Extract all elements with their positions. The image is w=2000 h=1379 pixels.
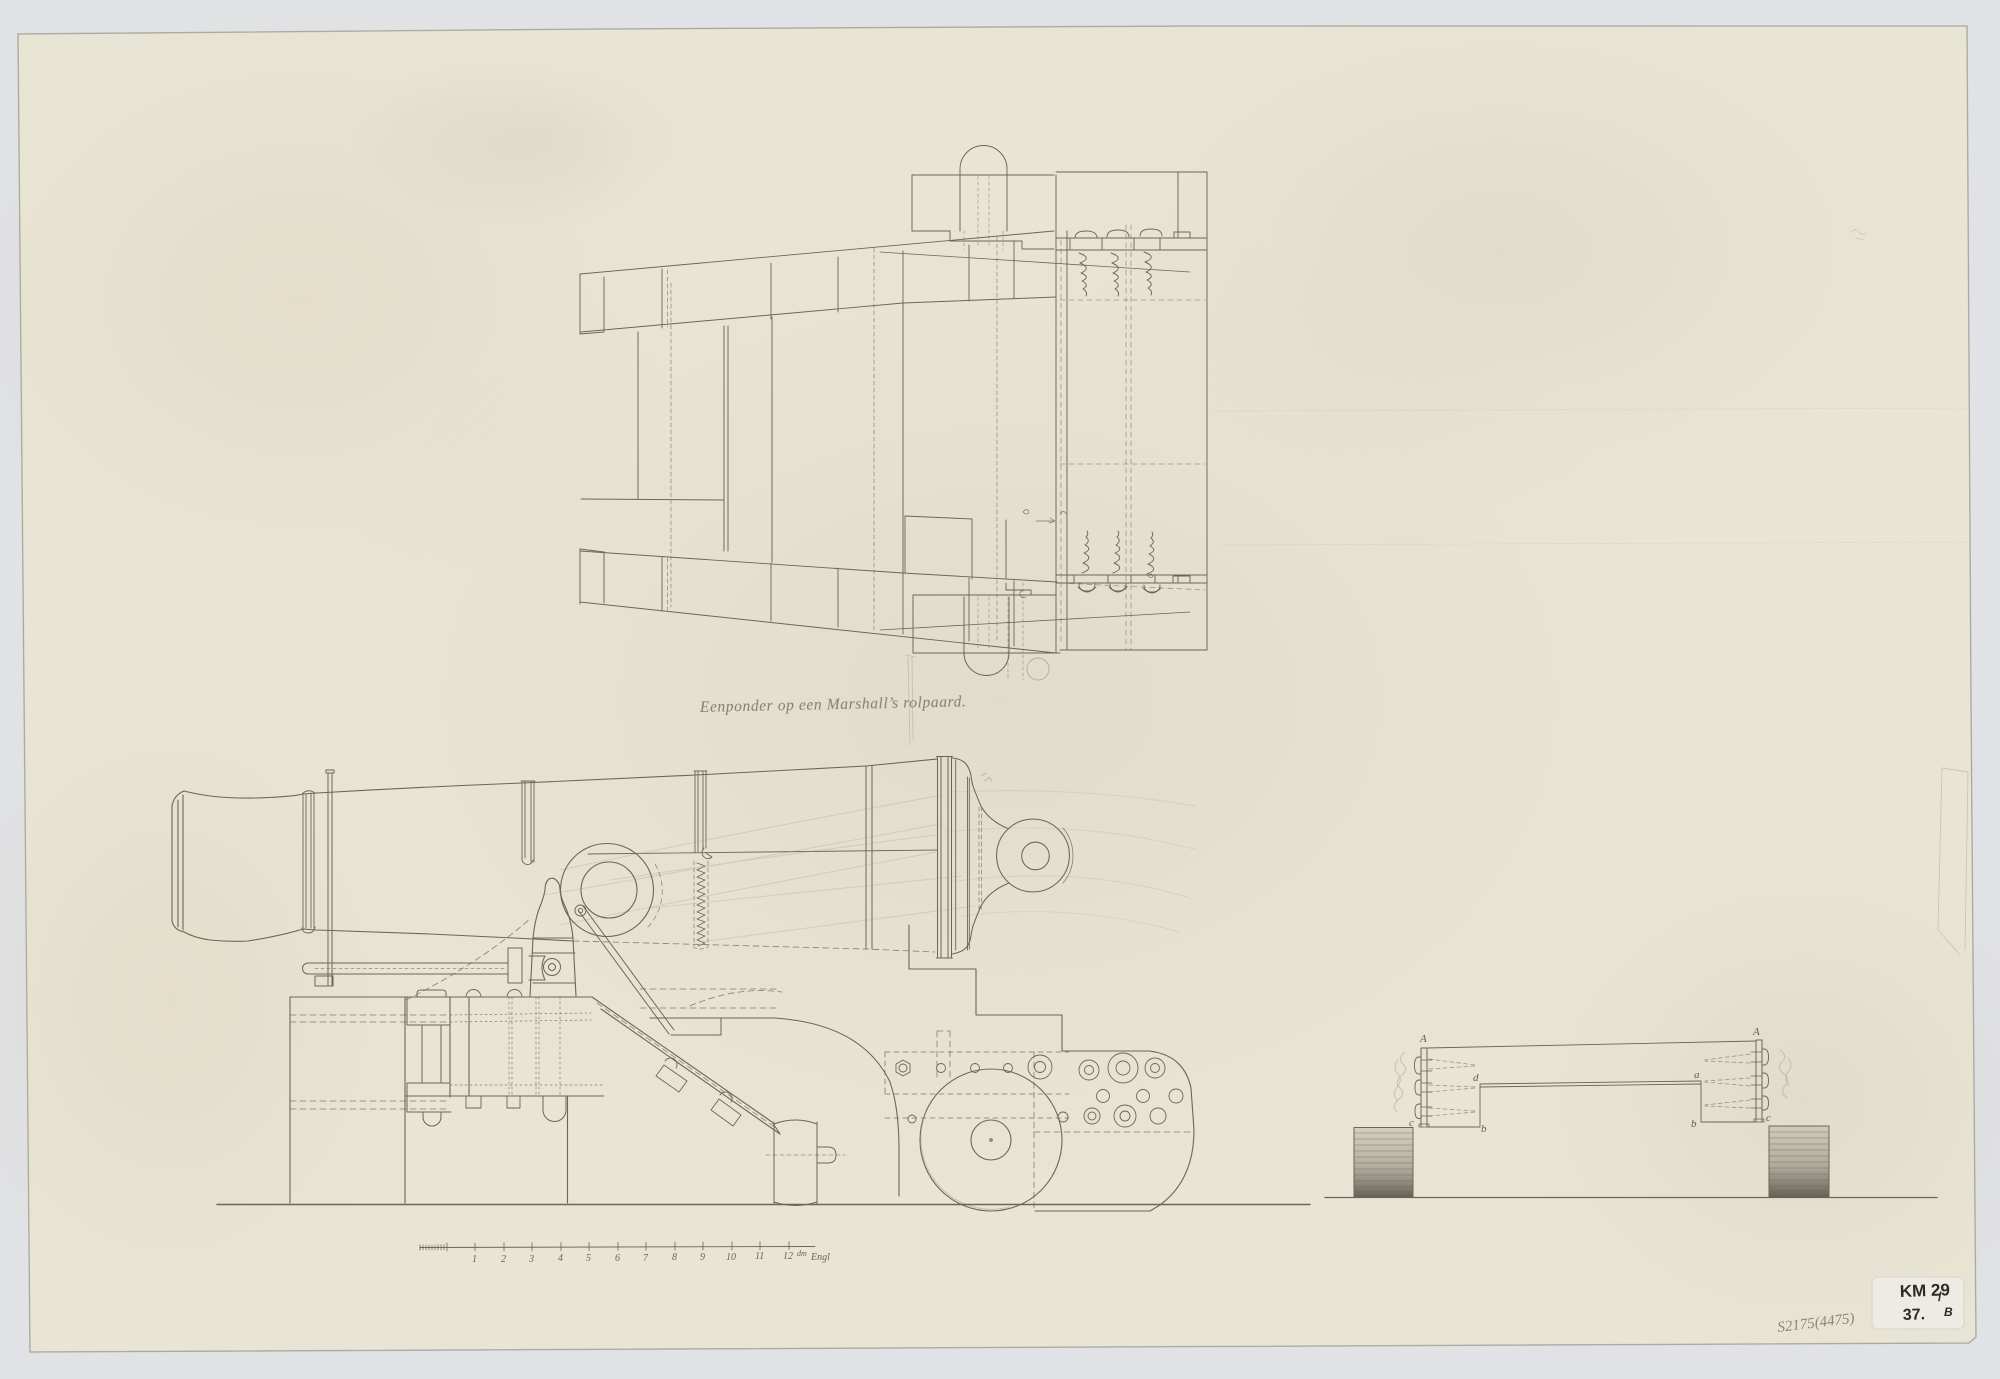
svg-text:c: c [1409, 1117, 1414, 1129]
svg-text:6: 6 [615, 1253, 620, 1264]
svg-text:4: 4 [558, 1253, 563, 1264]
svg-text:37.: 37. [1903, 1306, 1926, 1324]
svg-text:12: 12 [783, 1251, 793, 1262]
svg-text:A: A [1752, 1026, 1760, 1038]
svg-text:KM 29: KM 29 [1899, 1280, 1950, 1301]
svg-text:c: c [1766, 1112, 1771, 1124]
svg-text:10: 10 [726, 1252, 736, 1263]
svg-text:b: b [1481, 1123, 1487, 1135]
svg-text:3: 3 [528, 1254, 534, 1265]
svg-text:5: 5 [586, 1253, 591, 1264]
svg-text:b: b [1691, 1118, 1697, 1130]
svg-text:9: 9 [700, 1252, 705, 1263]
svg-text:B: B [1944, 1305, 1953, 1319]
svg-text:a: a [1694, 1069, 1700, 1081]
svg-text:dm: dm [797, 1249, 807, 1258]
svg-text:2: 2 [501, 1254, 506, 1265]
svg-text:d: d [1473, 1072, 1479, 1084]
svg-text:1: 1 [472, 1254, 477, 1265]
svg-text:11: 11 [755, 1251, 764, 1262]
svg-text:8: 8 [672, 1252, 677, 1263]
svg-text:/: / [1938, 1289, 1942, 1304]
svg-text:Engl: Engl [810, 1252, 830, 1263]
svg-text:A: A [1419, 1033, 1427, 1045]
